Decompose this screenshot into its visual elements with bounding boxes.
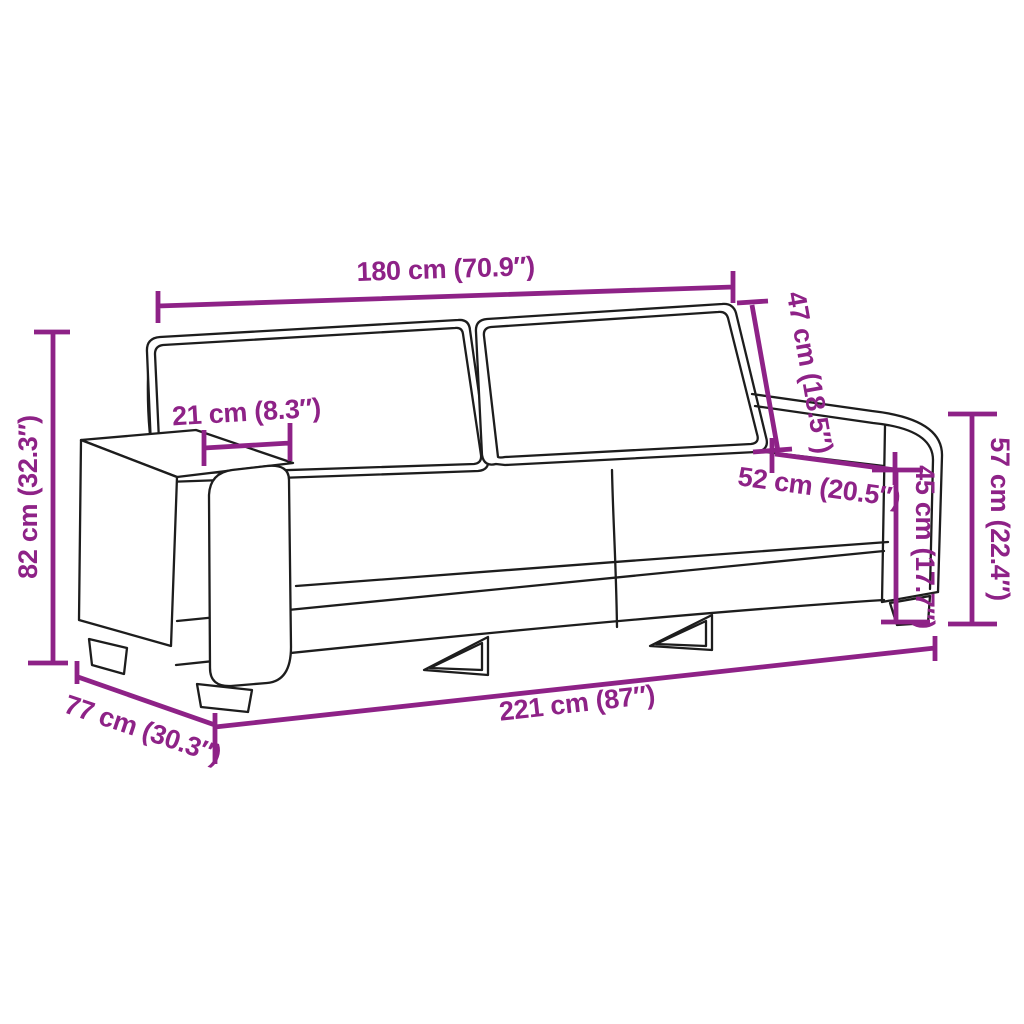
dimension-armrest-height: 57 cm (22.4″) [948,414,1015,624]
sofa-armrest-left [79,430,293,712]
sofa-sled-leg-left [424,637,488,675]
sofa-foot-inner-left [197,684,252,712]
diagram-canvas: 180 cm (70.9″) 47 cm (18.5″) 52 cm (20.5… [0,0,1024,1024]
dimension-label-backrest-height: 47 cm (18.5″) [781,289,839,455]
dimension-label-armrest-height: 57 cm (22.4″) [985,437,1015,601]
sofa-seat-cushion-split [612,470,617,627]
dimension-overall-depth: 77 cm (30.3″) [61,661,226,770]
dimension-label-overall-height: 82 cm (32.3″) [13,415,43,579]
dimension-overall-width: 221 cm (87″) [215,636,935,764]
dimension-label-seat-height: 45 cm (17.7″) [910,465,940,629]
sofa-dimension-diagram: 180 cm (70.9″) 47 cm (18.5″) 52 cm (20.5… [0,0,1024,1024]
sofa-armrest-left-side [79,440,177,646]
sofa-armrest-left-front-panel [209,466,291,686]
dimension-label-overall-top-width: 180 cm (70.9″) [356,251,535,287]
sofa-sled-leg-right [650,615,712,650]
dimension-overall-height: 82 cm (32.3″) [13,332,70,663]
sofa-back-cushion-right [476,304,767,465]
sofa-foot-front-left [89,639,127,674]
